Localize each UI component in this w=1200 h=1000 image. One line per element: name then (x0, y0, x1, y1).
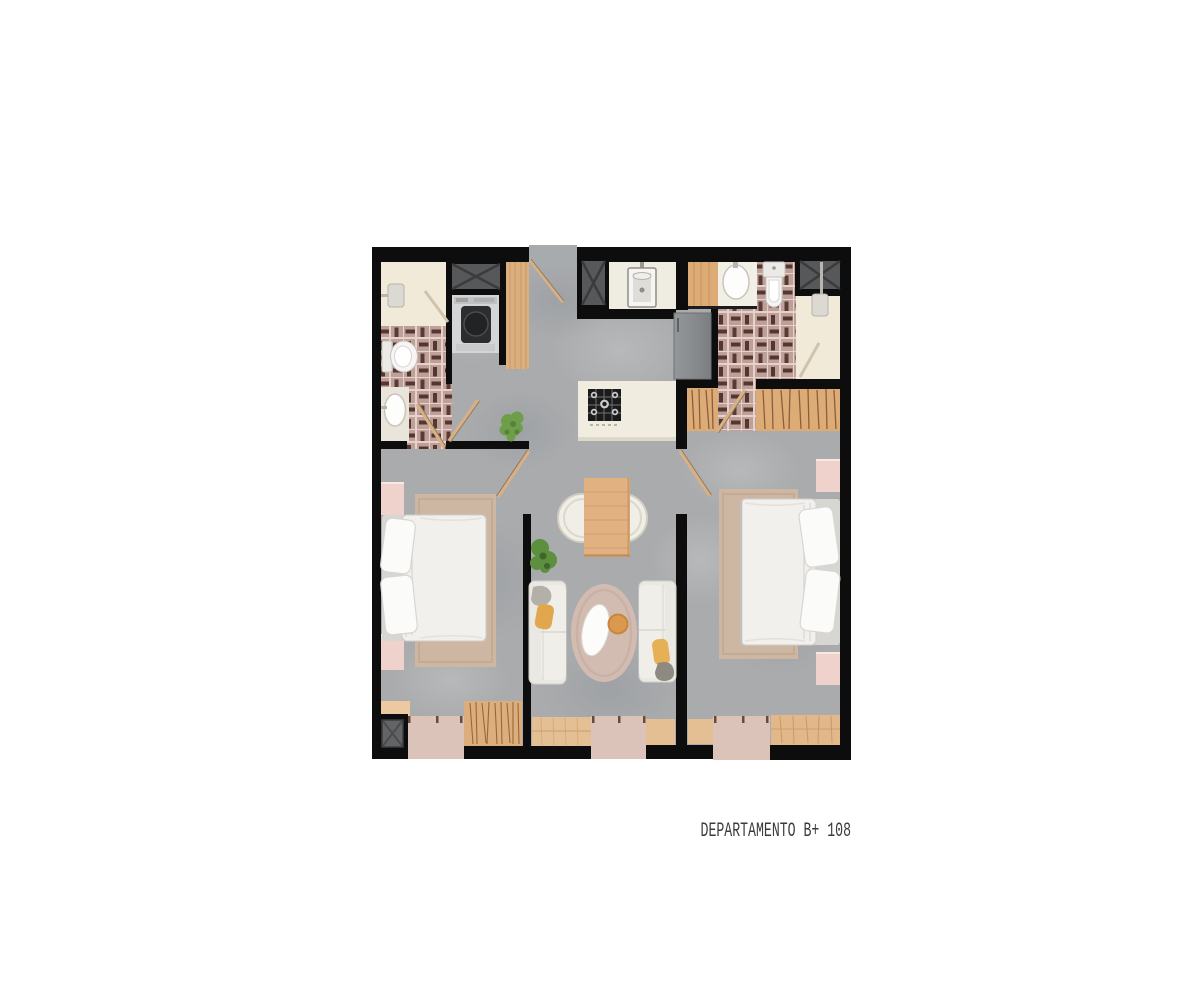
svg-text:DEPARTAMENTO B+ 108: DEPARTAMENTO B+ 108 (701, 821, 851, 843)
